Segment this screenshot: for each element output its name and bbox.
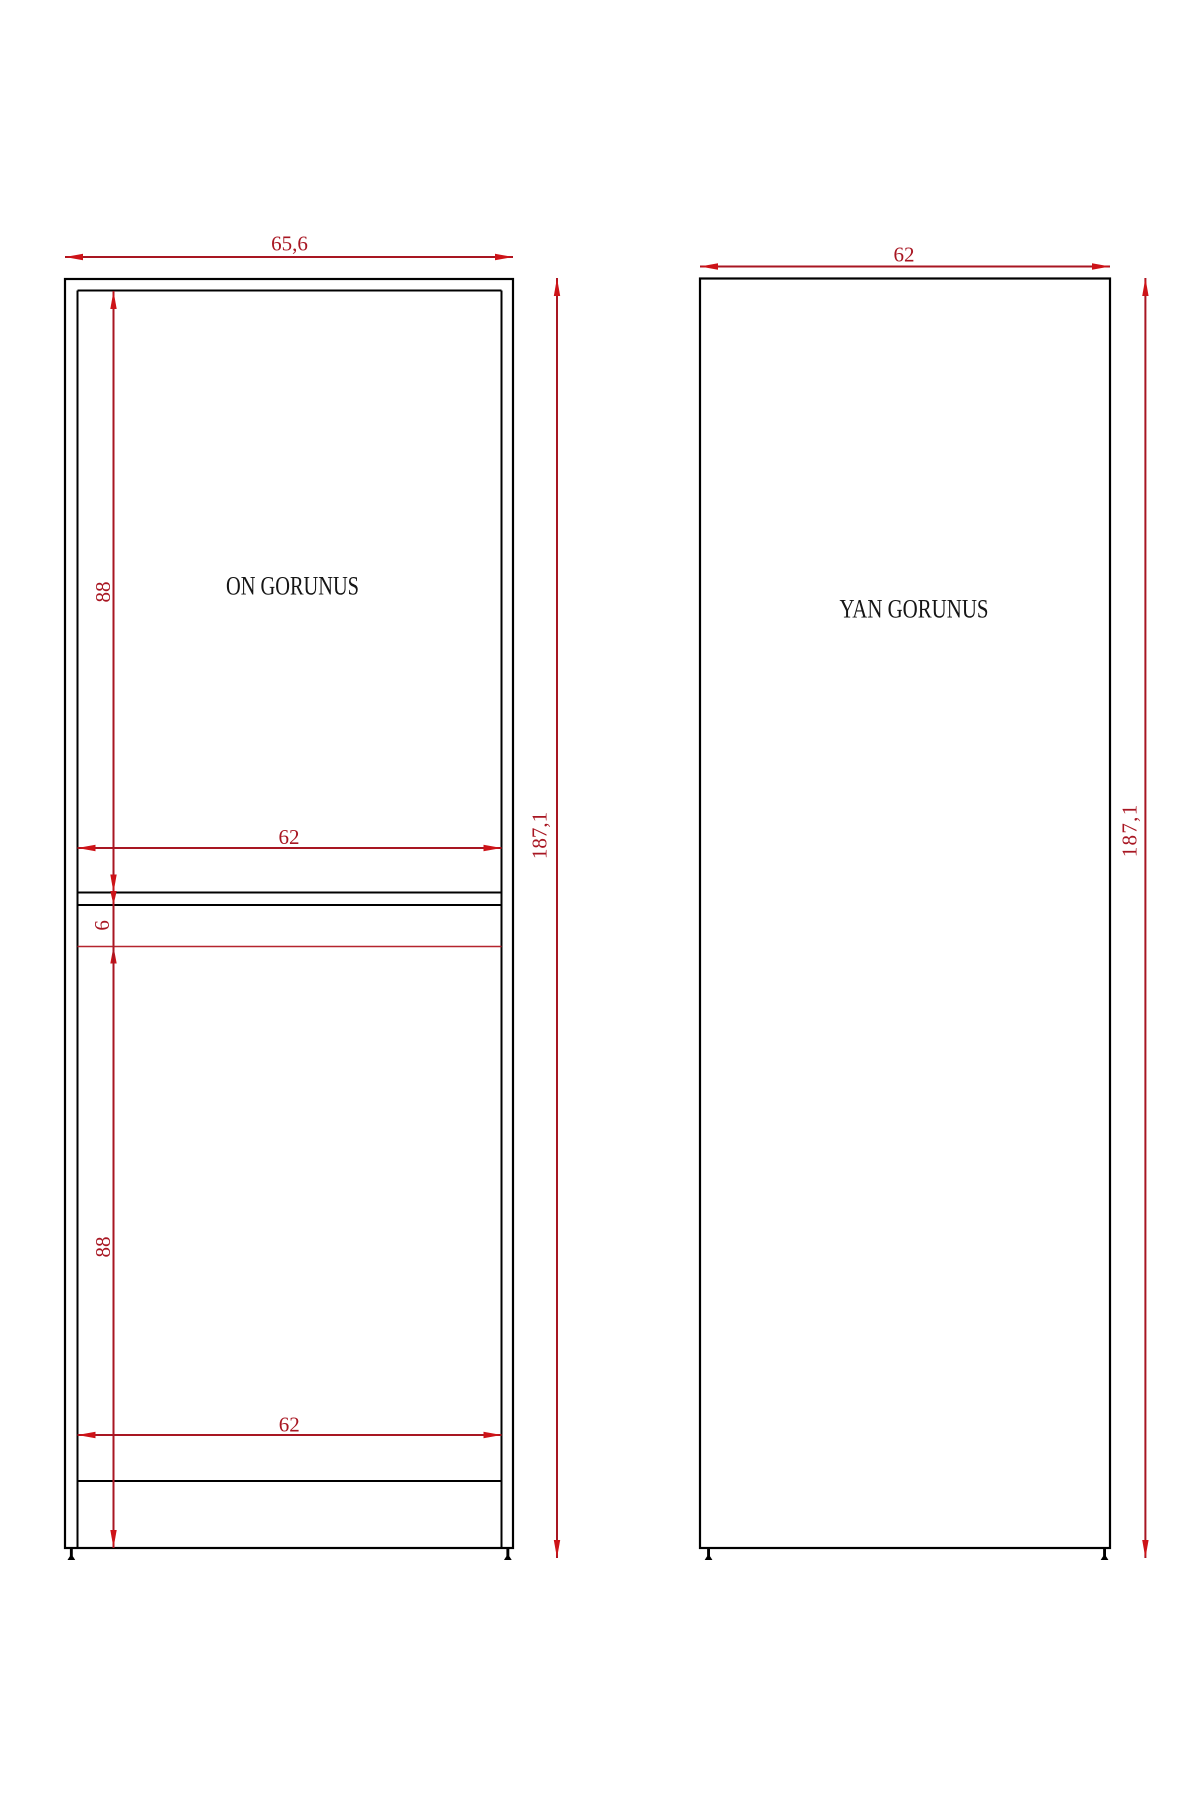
svg-text:62: 62	[279, 825, 300, 849]
svg-text:ON GORUNUS: ON GORUNUS	[226, 572, 359, 601]
svg-text:65,6: 65,6	[271, 231, 308, 255]
svg-text:88: 88	[91, 1237, 115, 1258]
svg-text:6: 6	[90, 920, 114, 931]
svg-text:88: 88	[91, 582, 115, 603]
svg-text:187,1: 187,1	[528, 812, 552, 859]
svg-text:YAN GORUNUS: YAN GORUNUS	[840, 595, 989, 624]
svg-text:187,1: 187,1	[1118, 805, 1142, 858]
svg-text:62: 62	[894, 243, 915, 267]
svg-text:62: 62	[279, 1413, 300, 1437]
